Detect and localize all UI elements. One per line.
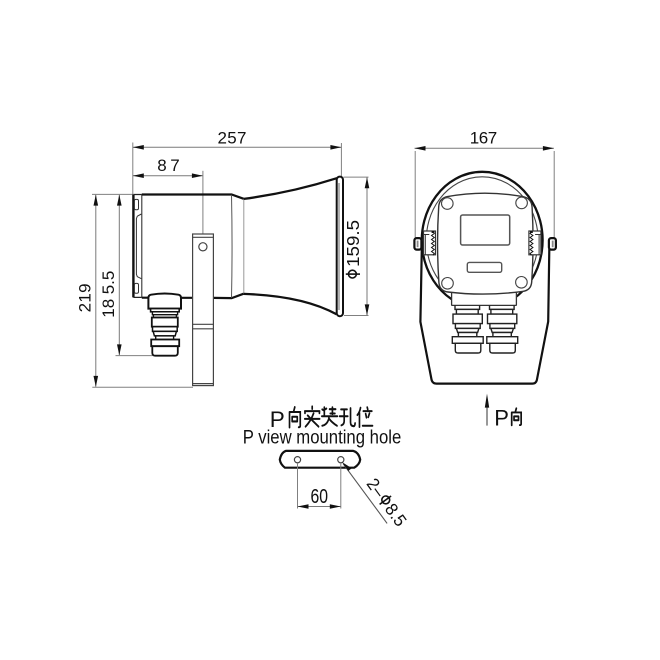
svg-text:8 7: 8 7: [157, 156, 180, 175]
svg-text:60: 60: [311, 486, 329, 508]
svg-text:18 5.5: 18 5.5: [99, 271, 118, 318]
svg-text:167: 167: [470, 128, 498, 147]
svg-text:257: 257: [218, 129, 247, 148]
svg-text:219: 219: [76, 283, 95, 312]
svg-text:159.5: 159.5: [343, 220, 363, 267]
svg-text:P: P: [494, 406, 509, 431]
svg-text:P view mounting hole: P view mounting hole: [243, 427, 402, 449]
